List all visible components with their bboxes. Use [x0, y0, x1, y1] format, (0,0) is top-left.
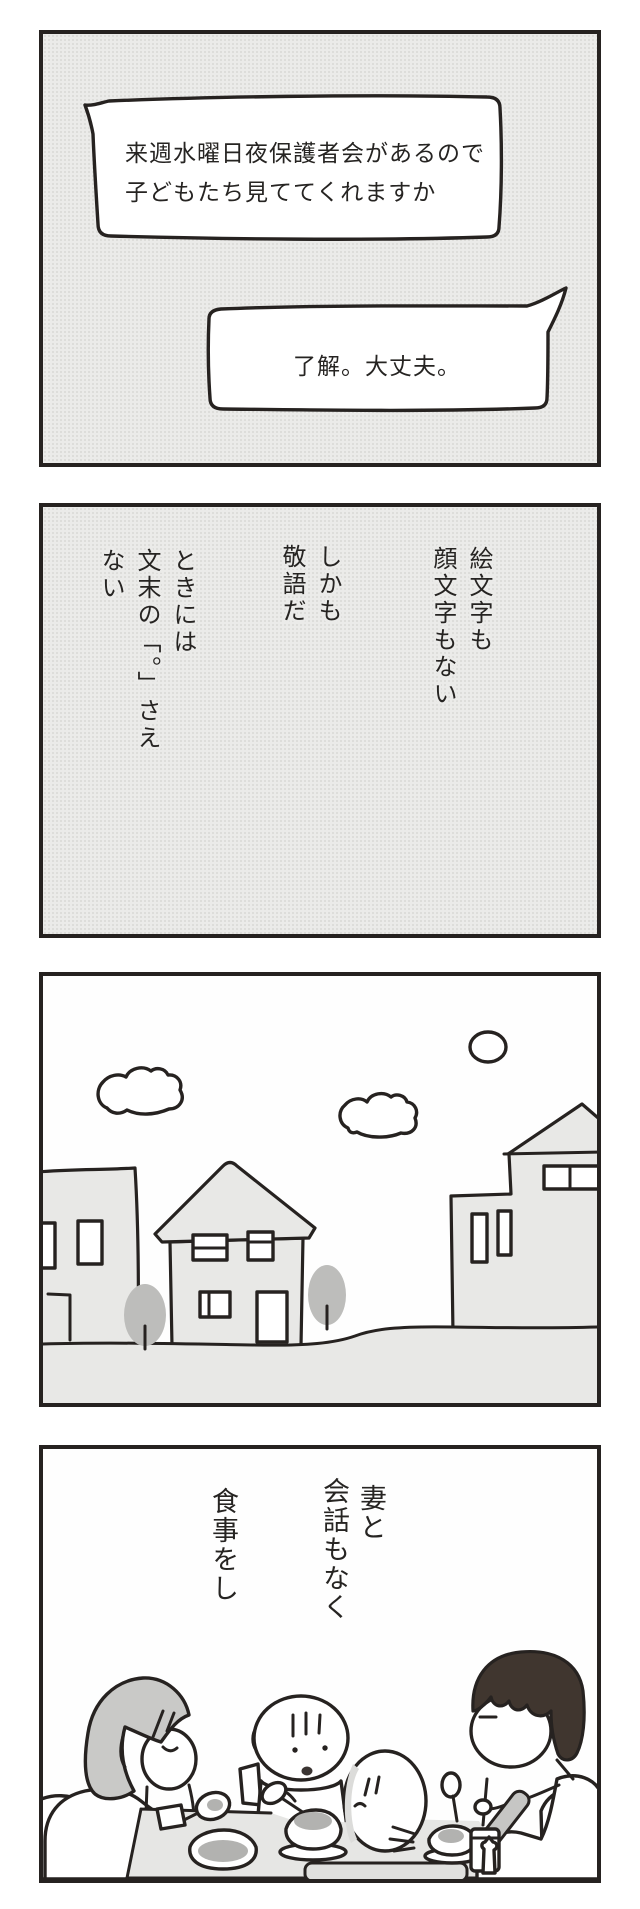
narration-phrase-4: 妻と 会話もなく [315, 1477, 389, 1622]
rice-bowl-large [190, 1830, 256, 1869]
narration-phrase-2: しかも 敬語だ [274, 544, 346, 625]
chat-message-right: 了解。大丈夫。 [207, 347, 547, 381]
speech-bubble-layer [43, 34, 597, 463]
sauce-bottle [482, 1837, 497, 1873]
narration-phrase-5: 食事をし [204, 1487, 241, 1603]
house-door [257, 1292, 287, 1342]
narration-phrase-2-col1: しかも [310, 544, 346, 625]
child-figure-2 [344, 1751, 426, 1851]
spoon-standing [442, 1773, 460, 1797]
neighborhood-scene [43, 976, 597, 1403]
panel-1-chat: 来週水曜日夜保護者会があるので 子どもたち見ててくれますか 了解。大丈夫。 [39, 30, 601, 467]
manga-page: 来週水曜日夜保護者会があるので 子どもたち見ててくれますか 了解。大丈夫。 絵文… [0, 0, 640, 1909]
narration-phrase-2-col2: 敬語だ [274, 544, 310, 625]
panel-2-narration: 絵文字も 顔文字もない しかも 敬語だ ときには 文末の「。」さえ ない [39, 503, 601, 938]
chat-message-left: 来週水曜日夜保護者会があるので 子どもたち見ててくれますか [125, 135, 485, 213]
narration-phrase-3: ときには 文末の「。」さえ ない [93, 548, 201, 752]
building-left [43, 1168, 138, 1348]
narration-phrase-1-col1: 絵文字も [461, 546, 497, 708]
child-1-eye-left [292, 1747, 297, 1752]
narration-phrase-4-col1: 妻と [352, 1477, 389, 1622]
child-2-head [344, 1751, 426, 1851]
food [294, 1812, 332, 1830]
cloud-icon-left [98, 1068, 182, 1114]
husband-hand [475, 1800, 491, 1814]
child-1-face [254, 1696, 348, 1780]
house-icon [155, 1163, 315, 1347]
child-1-eye-right [322, 1745, 327, 1750]
narration-phrase-3-col3: ない [93, 548, 129, 752]
food [438, 1829, 464, 1843]
panel-4-dinner: 妻と 会話もなく 食事をし [39, 1445, 601, 1883]
child-2-bench [305, 1863, 467, 1879]
narration-phrase-3-col2: 文末の「。」さえ [129, 548, 165, 752]
child-figure-1 [253, 1696, 348, 1827]
panel-3-neighborhood [39, 972, 601, 1407]
child-1-mouth [302, 1767, 313, 1776]
chat-message-left-line1: 来週水曜日夜保護者会があるので [125, 135, 485, 174]
building-right [451, 1104, 597, 1334]
food [198, 1840, 248, 1862]
narration-phrase-1: 絵文字も 顔文字もない [425, 546, 497, 708]
narration-phrase-3-col1: ときには [165, 548, 201, 752]
small-cloud-icon [470, 1032, 506, 1062]
narration-phrase-4-col2: 会話もなく [315, 1477, 352, 1622]
narration-phrase-1-col2: 顔文字もない [425, 546, 461, 708]
chat-message-left-line2: 子どもたち見ててくれますか [125, 174, 485, 213]
tree-icon-right [308, 1265, 346, 1329]
cloud-icon-right [340, 1094, 417, 1137]
